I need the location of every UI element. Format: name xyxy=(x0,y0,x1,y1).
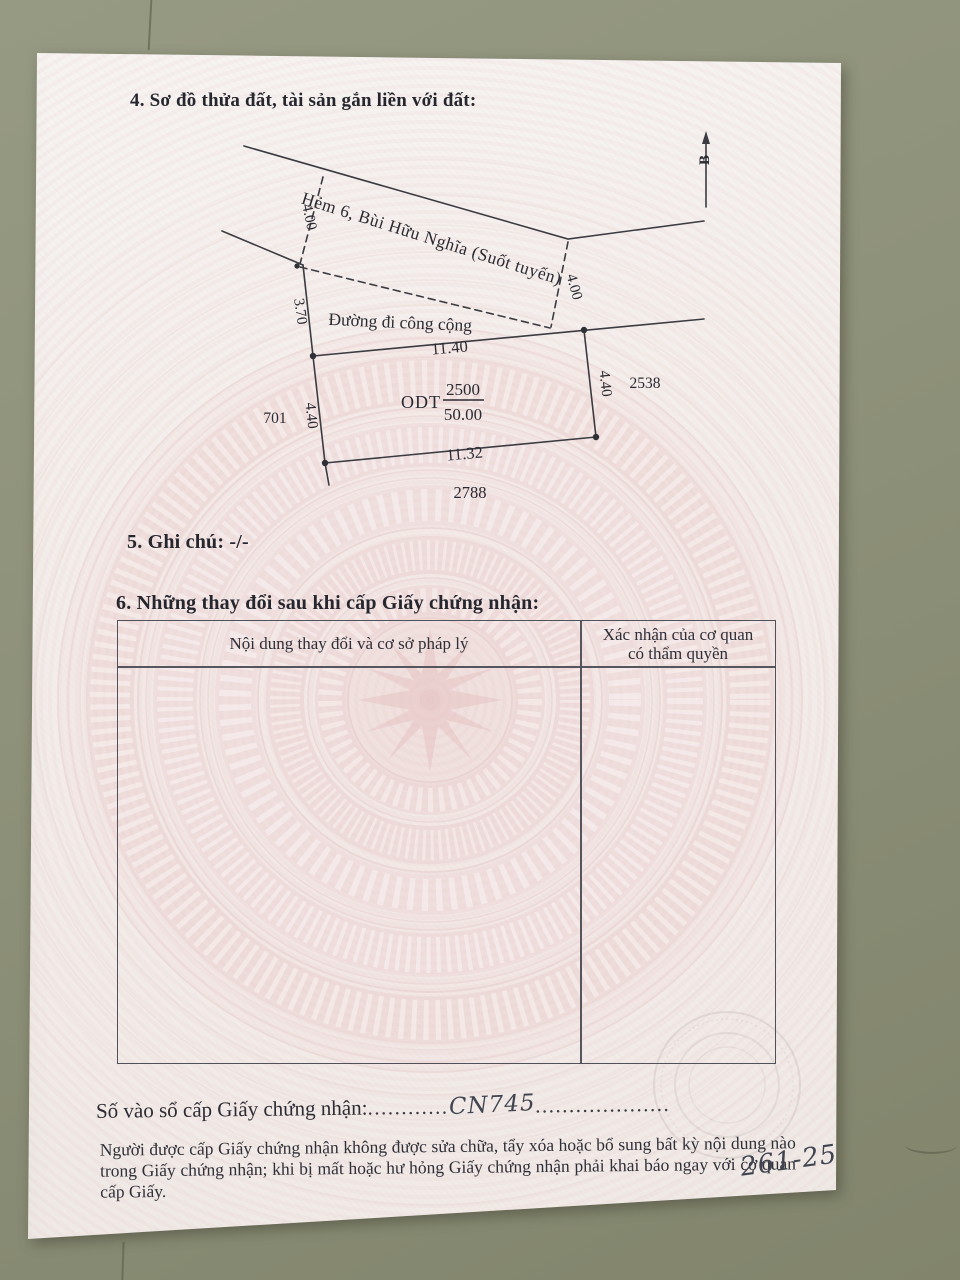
changes-table: Nội dung thay đổi và cơ sở pháp lý Xác n… xyxy=(117,620,776,1064)
section6-title: 6. Những thay đổi sau khi cấp Giấy chứng… xyxy=(116,592,539,615)
footer-note: Người được cấp Giấy chứng nhận không đượ… xyxy=(100,1132,797,1202)
photo-of-certificate: 4. Sơ đồ thửa đất, tài sản gắn liền với … xyxy=(0,0,960,1280)
serial-dots-after: .................... xyxy=(535,1092,670,1118)
section5-title: 5. Ghi chú: -/- xyxy=(127,531,249,554)
serial-dots-before: ............ xyxy=(367,1095,448,1120)
table-header-confirmation: Xác nhận của cơ quan có thẩm quyền xyxy=(581,621,775,666)
serial-label: Số vào sổ cấp Giấy chứng nhận: xyxy=(96,1096,368,1123)
table-header-confirmation-line1: Xác nhận của cơ quan xyxy=(603,625,754,644)
section4-title: 4. Sơ đồ thửa đất, tài sản gắn liền với … xyxy=(130,90,476,112)
table-header-content: Nội dung thay đổi và cơ sở pháp lý xyxy=(118,621,580,666)
serial-handwritten-value: CN745 xyxy=(448,1090,536,1120)
footer-note-line2: Giấy chứng nhận; khi bị mất hoặc hư hỏng… xyxy=(100,1153,796,1201)
table-column-divider xyxy=(580,621,582,1063)
table-header-confirmation-line2: có thẩm quyền xyxy=(628,644,728,663)
table-header-divider xyxy=(118,666,775,668)
